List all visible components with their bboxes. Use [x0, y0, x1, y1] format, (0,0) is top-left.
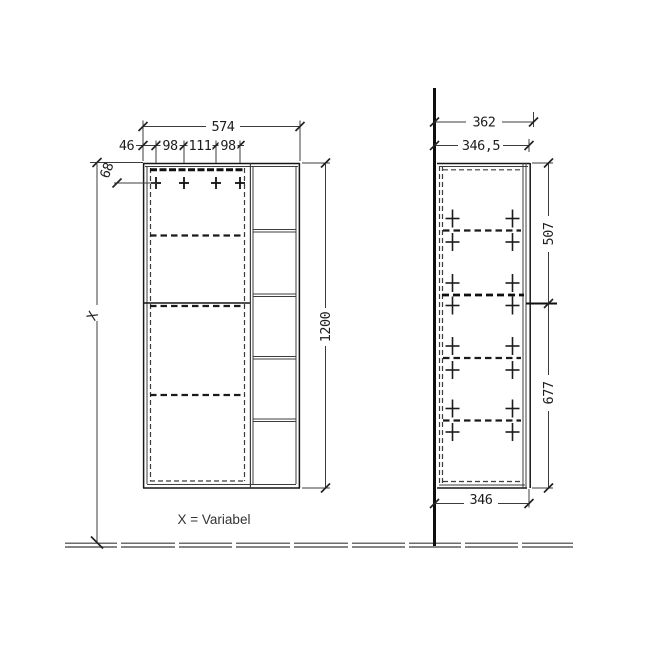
side-view: 362 346,5 507 677 — [430, 88, 557, 546]
dim-label-depth-bottom: 346 — [470, 492, 493, 508]
front-middle-fixed-shelf — [143, 303, 250, 306]
floor-line — [65, 543, 573, 547]
dim-label-offset-left: 46 — [119, 138, 135, 154]
dim-label-hinge-top-offset: 68 — [97, 160, 117, 180]
cabinet-dimension-drawing: 574 46 98 111 98 68 — [0, 0, 661, 661]
front-interior-shelves — [150, 236, 245, 396]
side-carcass-outline — [437, 163, 530, 488]
dim-label-hinge-gap-2: 111 — [189, 138, 212, 154]
hinge-position-markers — [151, 177, 245, 189]
variable-note-label: X = Variabel — [178, 512, 251, 527]
front-door-panel — [150, 168, 245, 481]
side-interior-shelves — [442, 231, 557, 421]
technical-drawing-canvas: 574 46 98 111 98 68 — [0, 0, 661, 661]
front-open-shelf-column — [250, 163, 296, 488]
dim-depth-body: 346,5 — [430, 138, 534, 154]
dim-section-heights: 507 677 — [532, 159, 557, 493]
dim-depth-bottom: 346 — [430, 489, 534, 508]
dim-front-height: 1200 — [302, 159, 334, 493]
dim-label-front-width: 574 — [212, 119, 235, 135]
dim-label-hinge-gap-1: 98 — [162, 138, 178, 154]
dim-label-hinge-gap-3: 98 — [220, 138, 236, 154]
dim-hinge-spacing: 46 98 111 98 — [119, 138, 245, 163]
front-carcass-outline — [143, 163, 300, 488]
side-shelf-pin-markers — [446, 210, 520, 442]
dim-label-upper-section: 507 — [541, 222, 557, 245]
dim-label-lower-section: 677 — [541, 381, 557, 404]
dim-label-depth-overall: 362 — [473, 115, 496, 131]
dim-depth-overall: 362 — [430, 112, 538, 131]
dim-label-front-height: 1200 — [318, 311, 334, 342]
dim-floor-clearance: X — [84, 163, 104, 549]
dim-label-depth-body: 346,5 — [462, 138, 501, 154]
front-view: 574 46 98 111 98 68 — [84, 119, 334, 549]
